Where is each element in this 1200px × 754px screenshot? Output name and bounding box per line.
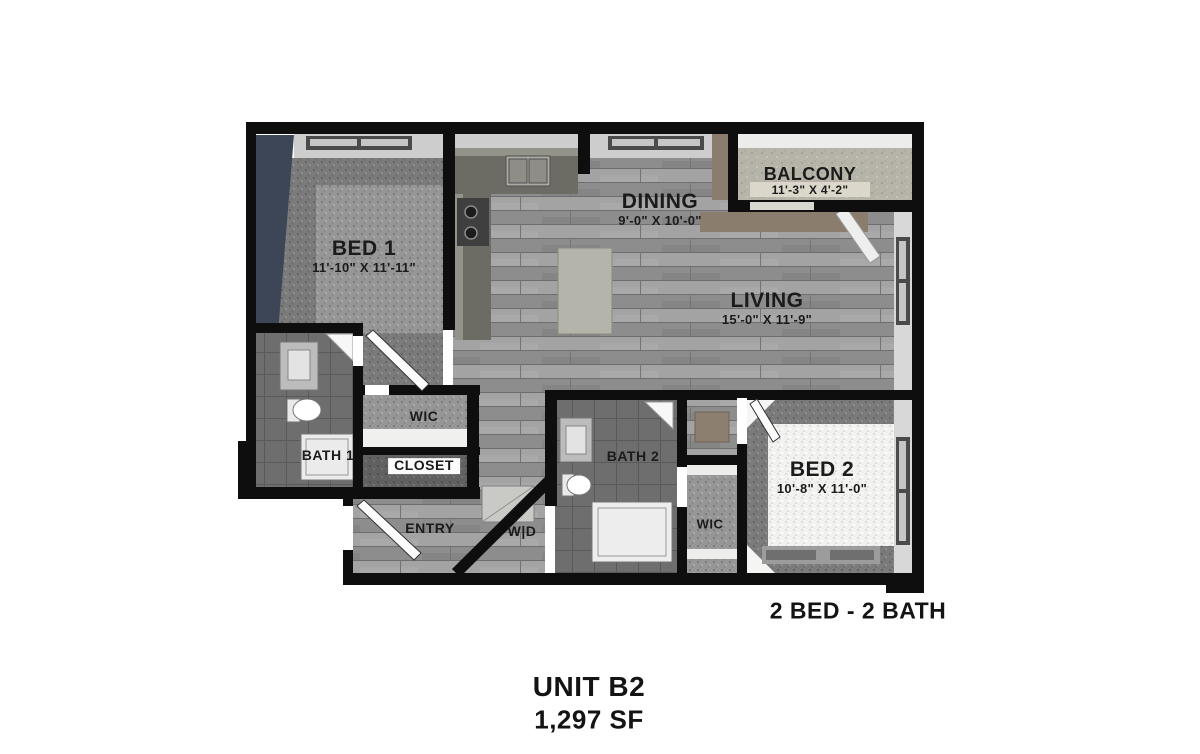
wall-closet-divider [353,447,480,455]
room-label-bath2: BATH 2 [607,449,660,465]
floor-plan-page: BED 1 11'-10" X 11'-11" DINING 9'-0" X 1… [0,0,1200,754]
room-label-wic2: WIC [697,518,724,533]
room-name: BED 1 [312,237,416,261]
bath1-toilet [287,399,321,422]
hall-floor [477,390,549,499]
wall-bottom-step [886,585,924,593]
bath1-vanity [280,342,318,390]
bath2-toilet [562,474,591,496]
room-name: WIC [410,409,439,425]
wic2-door-opening [677,467,687,507]
wic2-shelf-top [687,465,737,475]
living-window [896,237,910,325]
room-label-wic1: WIC [410,409,439,425]
room-name: BED 2 [777,458,867,482]
wall-right [912,122,924,585]
room-label-dining: DINING 9'-0" X 10'-0" [618,190,701,228]
room-name: CLOSET [388,458,460,474]
room-dims: 10'-8" X 11'-0" [777,481,867,496]
kitchen-sink [506,156,550,186]
dining-window [608,136,704,150]
wall-living-bottom [545,390,924,400]
linen-shelf [695,412,729,442]
wic1-door-opening [365,385,389,395]
bath2-vanity [560,418,592,462]
kitchen-wall-band [455,134,578,150]
unit-area: 1,297 SF [534,705,644,736]
room-label-washer-dryer: W|D [508,524,537,540]
room-name: WIC [697,518,724,533]
room-label-bath1: BATH 1 [302,448,355,464]
bed2-window [896,437,910,545]
front-door-opening [343,506,353,550]
room-dims: 11'-3" X 4'-2" [764,184,857,197]
bath2-tub [592,502,672,562]
room-label-bed1: BED 1 11'-10" X 11'-11" [312,237,416,275]
layout-caption: 2 BED - 2 BATH [770,598,947,625]
room-name: BATH 2 [607,449,660,465]
room-name: DINING [618,190,701,214]
room-name: BALCONY [764,164,857,184]
unit-name: UNIT B2 [533,671,645,703]
balcony-slider [750,202,814,210]
room-dims: 15'-0" X 11'-9" [722,312,812,327]
room-dims: 11'-10" X 11'-11" [312,260,416,275]
wall-wic1-right [467,385,479,499]
wall-kitchen-stub [578,134,590,174]
room-name: ENTRY [405,521,454,537]
wall-bed1-bottom [246,323,363,333]
room-label-living: LIVING 15'-0" X 11'-9" [722,289,812,327]
wic2-shelf-bottom [687,549,737,559]
kitchen-island [558,248,612,334]
room-label-bed2: BED 2 10'-8" X 11'-0" [777,458,867,496]
room-dims: 9'-0" X 10'-0" [618,213,701,228]
balcony-top-band [738,134,912,148]
floor-plan-graphic [0,0,1200,754]
balcony-column [712,134,728,200]
room-name: W|D [508,524,537,540]
wall-bottom [343,573,924,585]
room-label-balcony: BALCONY 11'-3" X 4'-2" [764,164,857,198]
room-name: BATH 1 [302,448,355,464]
wall-linen-bottom [687,455,737,465]
bath1-door-opening [353,336,363,366]
wall-balcony-left [728,122,738,212]
bed2-dresser-drawer [766,550,816,560]
wall-top [246,122,924,134]
wic1-shelf [363,429,470,447]
bed1-window [306,136,412,150]
room-label-closet: CLOSET [388,458,460,474]
room-label-entry: ENTRY [405,521,454,537]
room-name: LIVING [722,289,812,313]
stove [457,198,489,246]
wall-left [246,122,256,499]
bed2-dresser-drawer [830,550,874,560]
wall-bed1-kitchen [443,122,455,330]
bed2-door-opening [737,398,747,444]
